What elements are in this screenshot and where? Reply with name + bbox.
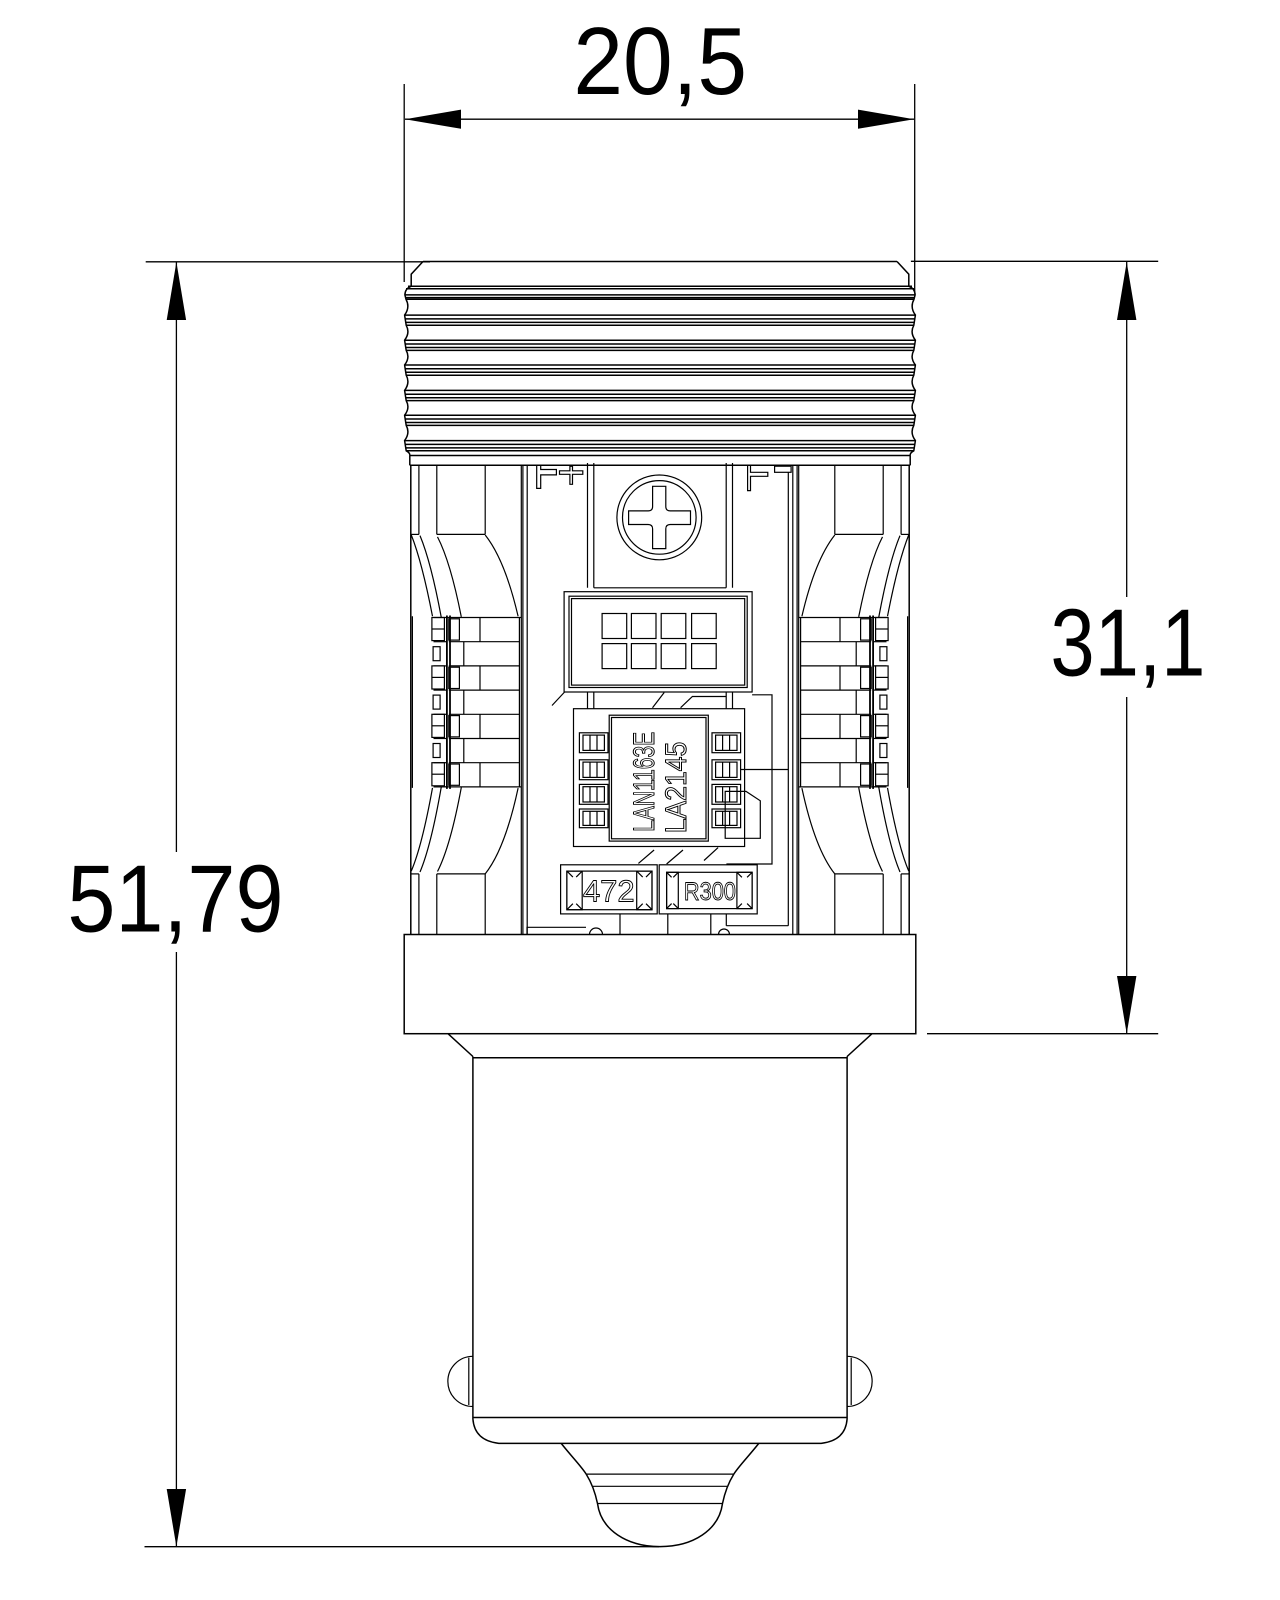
svg-text:R300: R300: [684, 878, 736, 906]
svg-text:31,1: 31,1: [1050, 588, 1205, 696]
svg-text:20,5: 20,5: [573, 7, 747, 115]
svg-text:51,79: 51,79: [67, 845, 283, 952]
svg-text:472: 472: [583, 874, 635, 909]
svg-text:LAN1163E: LAN1163E: [628, 732, 660, 832]
svg-text:LA2145: LA2145: [659, 742, 693, 833]
